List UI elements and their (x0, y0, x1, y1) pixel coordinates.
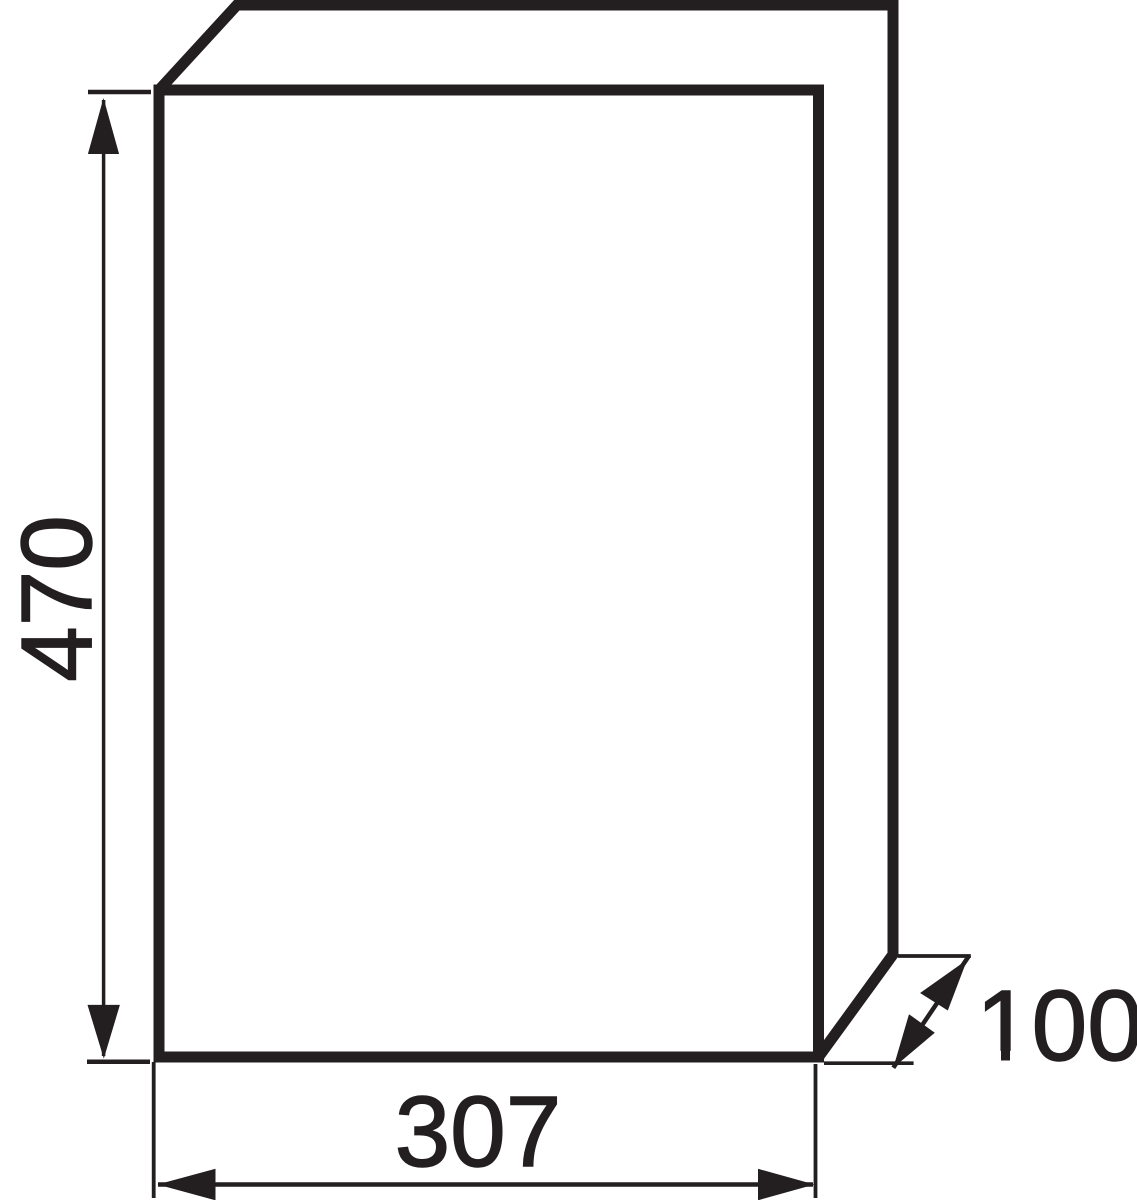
svg-text:100: 100 (976, 970, 1137, 1082)
svg-text:307: 307 (395, 1076, 562, 1188)
svg-text:470: 470 (1, 515, 113, 682)
